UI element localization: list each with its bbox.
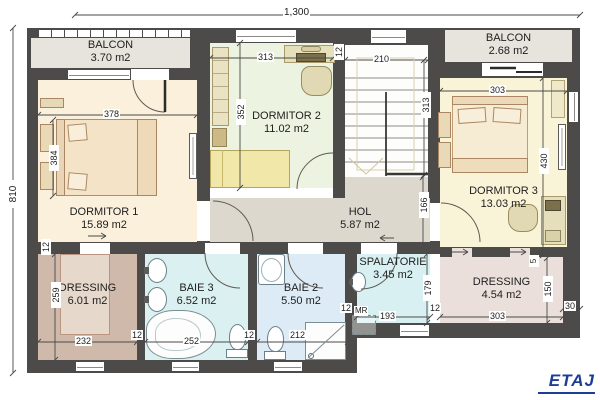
dim-d1-width: 378	[103, 109, 120, 119]
dim-wall: 12	[340, 303, 352, 313]
pillow	[67, 172, 87, 191]
washer-label: MR	[354, 306, 368, 316]
door-opening	[430, 203, 440, 241]
door-opening	[131, 69, 169, 80]
wardrobe	[212, 47, 229, 126]
door-opening	[205, 243, 240, 254]
room-name: DORMITOR 1	[38, 206, 170, 219]
printer	[545, 230, 561, 242]
room-area: 3.70 m2	[31, 52, 190, 65]
toilet-tank	[264, 351, 286, 360]
floor-title: ETAJ	[538, 371, 595, 394]
room-label-dormitor-1: DORMITOR 1 15.89 m2	[38, 206, 170, 231]
dim-wall-right: 30	[564, 301, 576, 311]
bed-foot-bench	[452, 158, 528, 173]
dim-wall: 12	[429, 303, 441, 313]
window-glyph	[171, 361, 200, 372]
window-glyph	[75, 361, 105, 372]
door-opening	[288, 243, 323, 254]
window-glyph	[273, 361, 303, 372]
window-glyph	[399, 324, 430, 337]
dim-wall: 12	[243, 330, 255, 340]
room-label-dormitor-2: DORMITOR 2 11.02 m2	[240, 110, 333, 135]
dim-hol-height: 166	[419, 192, 429, 218]
sink	[147, 258, 167, 283]
dim-d1-bed: 384	[49, 145, 59, 171]
wardrobe	[551, 80, 565, 118]
room-name: BALCON	[445, 32, 572, 45]
room-area: 2.68 m2	[445, 45, 572, 58]
room-label-baie-2: BAIE 2 5.50 m2	[257, 282, 345, 307]
room-name: DORMITOR 2	[240, 110, 333, 123]
nightstand	[212, 128, 227, 147]
dim-d3-width: 303	[489, 85, 506, 95]
dim-wall: 12	[41, 239, 51, 255]
dim-stairs-height: 313	[421, 92, 431, 118]
room-staircase	[345, 45, 428, 177]
bathtub-inner	[155, 318, 201, 351]
window-glyph	[370, 29, 407, 44]
dim-spalatorie-height: 179	[423, 275, 433, 301]
dim-dressing-r-height: 150	[543, 276, 553, 302]
laptop	[296, 53, 326, 62]
door-opening	[297, 189, 333, 198]
wall-segment	[430, 28, 445, 62]
wall-segment	[345, 323, 580, 338]
dim-d3-height: 430	[539, 148, 549, 174]
toilet	[267, 326, 284, 352]
faucet	[144, 267, 149, 274]
closet-opening	[510, 248, 530, 257]
room-label-balcon-left: BALCON 3.70 m2	[31, 39, 190, 64]
radiator	[558, 124, 566, 170]
pillow	[493, 107, 522, 124]
pillow	[67, 123, 87, 142]
dim-dressing-r-width: 303	[489, 311, 506, 321]
room-area: 5.50 m2	[257, 295, 345, 308]
door-opening	[197, 201, 210, 241]
door-opening	[361, 243, 397, 254]
dim-d2-width: 313	[257, 52, 274, 62]
floor-plan-etaj: BALCON 3.70 m2 BALCON 2.68 m2 DORMITOR 1…	[0, 0, 600, 400]
door-opening	[80, 243, 110, 254]
room-name: SPALATORIE	[350, 256, 436, 269]
nightstand	[438, 142, 451, 168]
sink	[261, 258, 282, 282]
shower-drain	[308, 353, 314, 359]
bed-headboard	[452, 96, 528, 105]
dim-wall: 12	[131, 330, 143, 340]
dim-dressing-l-height: 259	[51, 282, 61, 308]
room-label-hol: HOL 5.87 m2	[300, 206, 420, 231]
pillow	[458, 107, 487, 124]
window-glyph	[568, 91, 579, 123]
room-label-dormitor-3: DORMITOR 3 13.03 m2	[440, 185, 567, 210]
room-area: 5.87 m2	[300, 219, 420, 232]
room-name: BALCON	[31, 39, 190, 52]
wall-segment	[563, 247, 580, 338]
window-glyph	[235, 29, 297, 43]
wall-segment	[333, 43, 345, 198]
room-area: 11.02 m2	[240, 123, 333, 136]
dim-dressing-l-width: 232	[75, 336, 92, 346]
dim-baie2-width: 212	[289, 330, 306, 340]
room-name: BAIE 2	[257, 282, 345, 295]
toilet-tank	[226, 349, 248, 358]
dim-wall: 12	[334, 44, 344, 60]
wall-segment	[248, 252, 257, 360]
room-name: BAIE 3	[145, 282, 248, 295]
dim-overall-height: 810	[9, 180, 19, 208]
balcony-railing	[38, 28, 190, 38]
dim-overall-width: 1,300	[283, 8, 310, 18]
office-chair	[301, 66, 332, 96]
dim-stairs-width: 210	[373, 54, 390, 64]
desk-lamp	[301, 46, 321, 52]
room-label-balcon-right: BALCON 2.68 m2	[445, 32, 572, 57]
room-name: HOL	[300, 206, 420, 219]
closet-opening	[452, 248, 472, 257]
window-glyph	[67, 69, 131, 80]
dim-baie3-width: 252	[183, 336, 200, 346]
balcony-rail-right	[572, 28, 580, 64]
nightstand	[438, 112, 451, 138]
room-area: 15.89 m2	[38, 219, 170, 232]
dim-d2-height: 352	[236, 99, 246, 125]
room-area: 13.03 m2	[440, 198, 567, 211]
bed-fold-line	[222, 150, 223, 188]
stair-landing	[345, 177, 428, 198]
room-name: DORMITOR 3	[440, 185, 567, 198]
dresser	[40, 98, 64, 108]
wall-segment	[27, 68, 38, 373]
washing-machine	[352, 315, 376, 335]
room-label-baie-3: BAIE 3 6.52 m2	[145, 282, 248, 307]
room-area: 6.52 m2	[145, 295, 248, 308]
sliding-door-opening	[482, 63, 543, 76]
dim-spalatorie-width: 193	[379, 311, 396, 321]
radiator	[189, 133, 197, 179]
bed-foot-bench	[137, 119, 157, 196]
dim-small: 5	[529, 255, 539, 267]
